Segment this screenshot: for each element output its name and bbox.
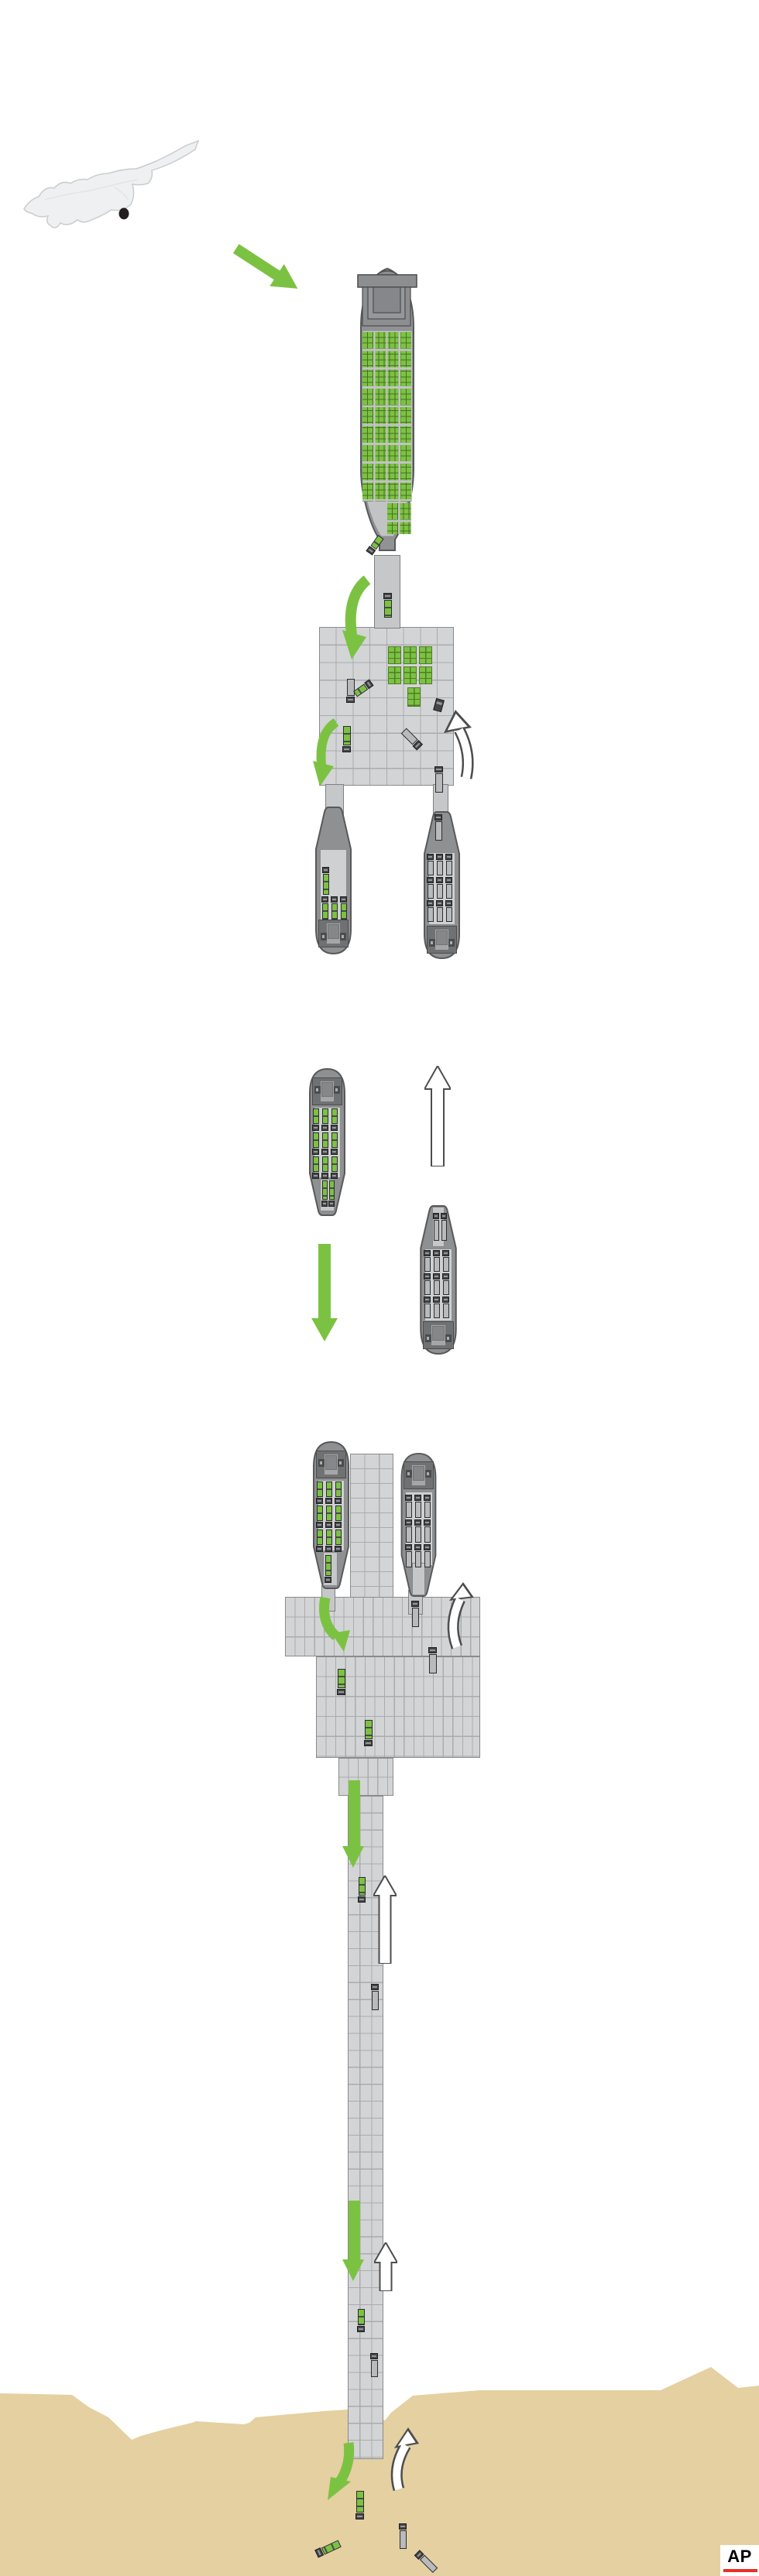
ship-container-stacks (362, 332, 412, 502)
ap-logo-text: AP (720, 2547, 759, 2567)
truck-empty (427, 877, 434, 899)
arrow-causeway-down-1 (342, 1780, 364, 1868)
arrow-return-to-vessel (438, 1581, 476, 1650)
shuttle-vessel-transit-empty (417, 1204, 460, 1357)
truck-empty (442, 1250, 449, 1272)
truck-empty (424, 1297, 431, 1318)
truck-loaded (355, 2491, 364, 2519)
arrow-causeway-to-beach (320, 2440, 355, 2503)
container-stack (419, 646, 432, 664)
truck-empty (433, 1213, 439, 1241)
truck-empty (434, 766, 443, 793)
port-marker-dot (119, 208, 129, 220)
truck-loaded (321, 1108, 328, 1131)
truck-empty (433, 1273, 440, 1295)
truck-empty (405, 1519, 412, 1543)
shuttle-vessel-reloading-empties (397, 1451, 440, 1598)
truck-empty (428, 1647, 437, 1673)
ap-logo-red-bar (723, 2569, 757, 2573)
truck-loaded (325, 1529, 332, 1552)
truck-loaded (321, 1156, 328, 1179)
arrow-causeway-down-2 (342, 2201, 364, 2281)
truck-empty (433, 1297, 440, 1318)
ship-container-stacks-partial (387, 503, 411, 534)
truck-loaded (358, 1877, 366, 1903)
truck-empty (411, 1601, 419, 1627)
arrow-causeway-up-1 (373, 1875, 397, 1964)
container-stack (419, 666, 432, 684)
cyprus-map (22, 139, 201, 255)
aid-corridor-infographic: AP (0, 0, 759, 2576)
truck-empty (442, 1297, 449, 1318)
truck-loaded (337, 1669, 345, 1695)
truck-loaded (316, 1529, 323, 1552)
truck-empty (433, 1250, 440, 1272)
truck-loaded (312, 1156, 319, 1179)
truck-loaded (316, 1506, 323, 1528)
ap-logo: AP (720, 2545, 759, 2576)
container-stack (407, 687, 421, 707)
truck-loaded (331, 1156, 338, 1179)
truck-loaded (335, 1529, 342, 1552)
truck-loaded (364, 1720, 373, 1746)
shuttle-vessel-transit-loaded (306, 1067, 349, 1214)
truck-loaded (340, 896, 347, 920)
pier-strip (350, 1454, 393, 1598)
vessel-bridge (318, 920, 349, 947)
truck-empty (436, 877, 443, 899)
shuttle-vessel-unloading (310, 1440, 352, 1591)
truck-loaded (321, 1132, 328, 1155)
vessel-bridge (423, 1321, 454, 1349)
arrow-causeway-up-2 (374, 2242, 397, 2291)
container-stack (388, 666, 401, 684)
vessel-bridge (312, 1077, 342, 1105)
arrow-ship-to-platform (342, 574, 373, 667)
truck-loaded (357, 2309, 365, 2332)
truck-empty (371, 1984, 379, 2010)
vessel-bridge (427, 926, 457, 954)
truck-empty (445, 900, 452, 922)
truck-loaded (321, 1180, 328, 1207)
truck-empty (424, 1519, 431, 1543)
truck-empty (424, 1495, 431, 1518)
truck-empty (442, 1273, 449, 1295)
truck-loaded (342, 726, 351, 752)
arrow-loaded-transit (311, 1244, 338, 1341)
truck-loaded (322, 867, 329, 895)
ship-bridge-wing (358, 275, 417, 287)
truck-empty (445, 877, 452, 899)
arrow-platform-to-vessel (313, 718, 341, 790)
vessel-bow-well (412, 1563, 425, 1595)
truck-loaded (325, 1506, 332, 1528)
truck-empty (414, 1519, 421, 1543)
truck-empty (370, 2353, 378, 2377)
truck-loaded (328, 1180, 335, 1207)
arrow-beach-to-causeway (389, 2426, 420, 2491)
cyprus-island-shape (24, 141, 198, 228)
truck-loaded (316, 1482, 323, 1504)
vessel-bridge (404, 1461, 434, 1489)
truck-loaded (335, 1506, 342, 1528)
shuttle-vessel-returning (421, 810, 463, 963)
shuttle-vessel-loading (312, 805, 355, 957)
container-stack (404, 646, 417, 664)
truck-empty (427, 900, 434, 922)
truck-loaded (321, 896, 328, 920)
truck-loaded (331, 1108, 338, 1131)
truck-empty (436, 900, 443, 922)
arrow-map-to-ship (228, 238, 304, 300)
truck-empty (405, 1544, 412, 1567)
truck-empty (405, 1495, 412, 1518)
truck-loaded (331, 1132, 338, 1155)
truck-empty (424, 1544, 431, 1567)
truck-empty (436, 854, 443, 875)
arrow-return-to-platform (443, 709, 477, 782)
truck-empty (424, 1273, 431, 1295)
truck-empty (441, 1213, 447, 1241)
truck-empty (399, 2523, 407, 2549)
arrow-return-transit (424, 1066, 451, 1166)
truck-loaded (383, 593, 392, 618)
truck-empty (414, 1495, 421, 1518)
container-stack (404, 666, 417, 684)
truck-empty (414, 1544, 421, 1567)
arrow-vessel-to-nearshore-platform (316, 1596, 351, 1654)
truck-loaded (312, 1132, 319, 1155)
truck-empty (424, 1250, 431, 1272)
truck-empty (427, 854, 434, 875)
truck-empty (445, 854, 452, 875)
container-stack (388, 646, 401, 664)
truck-loaded (335, 1482, 342, 1504)
truck-loaded (312, 1108, 319, 1131)
truck-empty (434, 814, 442, 841)
truck-loaded (331, 896, 338, 920)
truck-loaded (325, 1482, 332, 1504)
vessel-bridge (316, 1451, 346, 1478)
truck-loaded (325, 1555, 331, 1583)
